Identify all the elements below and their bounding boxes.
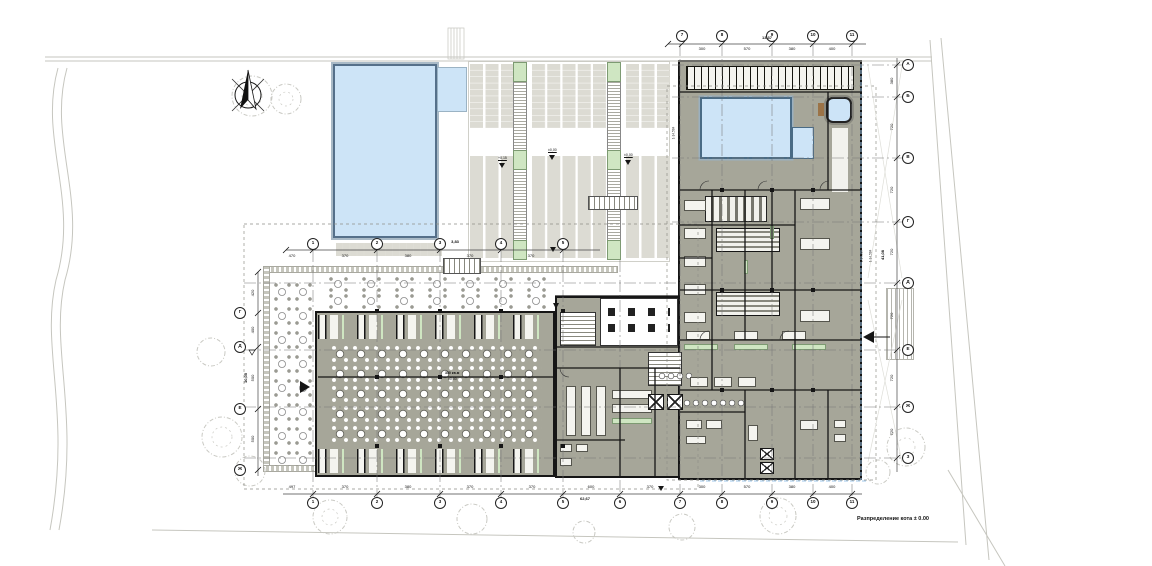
dim-right-0: 380 — [890, 78, 894, 85]
terrace-tables-left — [272, 280, 314, 466]
changing-bench-3 — [738, 377, 756, 387]
grid-bubble-top-1: 1 — [307, 238, 319, 250]
slope-label-1: 1-14.584 — [672, 127, 675, 140]
wc-fixture-6 — [834, 420, 846, 428]
grid-bubble-row-d: Д — [902, 277, 914, 289]
dim-bottom-6: 370 — [647, 485, 654, 489]
terrace-paving-left — [263, 266, 270, 472]
outdoor-pool-shallow — [437, 67, 467, 112]
lockers-row — [683, 399, 745, 408]
pergola-1-planter-mid — [513, 150, 527, 170]
indoor-pool — [700, 97, 792, 159]
treatment-bed-1 — [800, 198, 830, 210]
grid-bubble-4: 4 — [495, 497, 507, 509]
changing-bench-1 — [690, 377, 708, 387]
massage-bed-2 — [684, 228, 706, 239]
terrace-tables-top — [322, 276, 552, 309]
grid-bubble-5: 5 — [557, 497, 569, 509]
wc-fixture-4 — [748, 425, 758, 441]
grid-bubble-11: 11 — [846, 497, 858, 509]
massage-bed-4 — [684, 284, 706, 295]
grid-bubble-8: 8 — [716, 497, 728, 509]
grid-bubble-row-z: З — [902, 452, 914, 464]
grid-bubble-left-zh: Ж — [234, 464, 246, 476]
grid-bubble-left-e: Е — [234, 403, 246, 415]
pergola-1-planter-bot — [513, 240, 527, 260]
shaft-2 — [760, 462, 774, 474]
gym-mat-1 — [684, 344, 718, 350]
grid-bubble-tr-7: 7 — [676, 30, 688, 42]
grid-bubble-row-zh: Ж — [902, 401, 914, 413]
grid-bubble-top-3: 3 — [434, 238, 446, 250]
dim-bottom-0: 497 — [289, 485, 296, 489]
dim-left-1: 400 — [251, 327, 255, 334]
dim-bottom-total: 62,67 — [580, 497, 590, 501]
grid-bubble-7: 7 — [674, 497, 686, 509]
dim-bottom-8: 570 — [744, 485, 751, 489]
relax-benches — [705, 196, 767, 222]
massage-bed-3 — [684, 256, 706, 267]
grid-bubble-top-4: 4 — [495, 238, 507, 250]
floor-plan-canvas: 1 2 3 4 5 6 7 8 9 10 11 1 2 3 4 5 7 8 9 … — [0, 0, 1152, 566]
slope-label-3: 1-14.584 — [869, 250, 872, 263]
gym-bench-3 — [782, 331, 806, 340]
hall-area-label: 350 кв.м — [445, 372, 459, 376]
dim-tr-0: 300 — [699, 47, 706, 51]
wc-fixture-2 — [706, 420, 722, 429]
dim-tr-3: 400 — [829, 47, 836, 51]
pergola-2-planter-bot — [607, 240, 621, 260]
dim-right-4: 720 — [890, 313, 894, 320]
dim-bottom-1: 370 — [342, 485, 349, 489]
dim-bottom-4: 370 — [529, 485, 536, 489]
dim-bottom-2: 380 — [405, 485, 412, 489]
deck-level-note-3: ±0,00 — [624, 154, 633, 158]
dim-tr-2: 380 — [789, 47, 796, 51]
wc-fixture-1 — [686, 420, 702, 429]
dim-bottom-3: 370 — [467, 485, 474, 489]
dim-tr-total: 13,37 — [762, 36, 772, 40]
kitchen-counter-2 — [581, 386, 591, 436]
slope-label-2: 1-14.584 — [860, 250, 863, 263]
shaft-1 — [760, 448, 774, 460]
lobby-sofas-2 — [608, 324, 670, 332]
pergola-1-planter-top — [513, 62, 527, 82]
lobby-sofas-1 — [608, 308, 670, 316]
indoor-loungers-row — [686, 66, 854, 90]
grid-bubble-top-2: 2 — [371, 238, 383, 250]
datum-triangle — [249, 350, 255, 355]
dim-right-1: 720 — [890, 124, 894, 131]
gym-mat-2 — [734, 344, 768, 350]
dim-top-0: 470 — [289, 254, 296, 258]
dim-left-0: 420 — [251, 290, 255, 297]
dim-bottom-10: 400 — [829, 485, 836, 489]
kitchen-green-counter — [612, 418, 652, 424]
grid-bubble-row-v: В — [902, 152, 914, 164]
pool-loungers-row — [336, 243, 442, 261]
grid-bubble-10: 10 — [807, 497, 819, 509]
kitchen-bench-1 — [612, 390, 652, 399]
wc-fixture-5 — [800, 420, 818, 430]
elevator-2 — [667, 394, 683, 410]
hall-level-label: ±0,00 — [448, 378, 457, 382]
grid-bubble-tr-11: 11 — [846, 30, 858, 42]
outdoor-pool — [333, 64, 437, 238]
dim-right-6: 720 — [890, 429, 894, 436]
dim-right-3: 720 — [890, 249, 894, 256]
dim-right-2: 720 — [890, 187, 894, 194]
grid-bubble-1: 1 — [307, 497, 319, 509]
dim-top-1: 370 — [342, 254, 349, 258]
dim-tr-1: 570 — [744, 47, 751, 51]
grid-bubble-3: 3 — [434, 497, 446, 509]
gym-bench-1 — [686, 331, 710, 340]
dim-left-2: 500 — [251, 375, 255, 382]
terrace-paving-bottom — [263, 465, 323, 472]
pergola-2-planter-mid — [607, 150, 621, 170]
dim-top-4: 370 — [528, 254, 535, 258]
terrace-stairs — [443, 258, 481, 274]
elevator-1 — [648, 394, 664, 410]
service-lockers — [658, 372, 692, 381]
deck-loungers-c1 — [626, 64, 670, 128]
dim-bottom-7: 300 — [699, 485, 706, 489]
deck-level-note-2: ±0,00 — [548, 149, 557, 153]
deck-loungers-b1 — [532, 64, 606, 128]
terrace-paving-top — [263, 266, 618, 273]
jacuzzi — [826, 97, 852, 123]
door-strip-2 — [770, 225, 774, 239]
fixture-2 — [576, 444, 588, 452]
grid-bubble-2: 2 — [371, 497, 383, 509]
grid-bubble-tr-8: 8 — [716, 30, 728, 42]
deck-stairs — [588, 196, 638, 210]
kitchen-counter-1 — [566, 386, 576, 436]
towel-shelves — [832, 128, 854, 192]
sauna-2 — [716, 292, 780, 316]
drawing-title: Разпределение кота ± 0.00 — [857, 516, 929, 522]
grid-bubble-row-b: Б — [902, 91, 914, 103]
deck-level-note-1: +0,15 — [498, 157, 507, 161]
grid-bubble-left-g: Г — [234, 307, 246, 319]
massage-bed-5 — [684, 312, 706, 323]
dim-bottom-9: 380 — [789, 485, 796, 489]
fixture-1 — [560, 444, 572, 452]
wc-fixture-7 — [834, 434, 846, 442]
dim-bottom-5: 600 — [588, 485, 595, 489]
deck-loungers-a2 — [470, 156, 514, 258]
grid-bubble-top-5: 5 — [557, 238, 569, 250]
dim-top-note: 3,83 — [451, 240, 459, 244]
north-arrow-icon — [232, 70, 264, 111]
jacuzzi-bench — [818, 103, 824, 116]
restaurant-booths-top — [318, 315, 552, 339]
gym-bench-2 — [734, 331, 758, 340]
kitchen-counter-3 — [596, 386, 606, 436]
grid-bubble-row-a: А — [902, 59, 914, 71]
grid-bubble-tr-10: 10 — [807, 30, 819, 42]
restaurant-booths-bottom — [318, 449, 552, 473]
grid-bubble-left-d: Д — [234, 341, 246, 353]
dim-top-3: 370 — [467, 254, 474, 258]
wc-fixture-3 — [686, 436, 706, 444]
restaurant-tables — [330, 344, 542, 446]
dim-right-5: 720 — [890, 375, 894, 382]
deck-loungers-a1 — [470, 64, 514, 128]
treatment-bed-2 — [800, 238, 830, 250]
stair-core-1 — [560, 312, 596, 346]
door-strip-1 — [744, 260, 748, 274]
grid-bubble-9: 9 — [766, 497, 778, 509]
grid-bubble-6: 6 — [614, 497, 626, 509]
gym-mat-3 — [792, 344, 826, 350]
grid-bubble-row-e: Е — [902, 344, 914, 356]
lobby — [600, 298, 678, 346]
dim-left-3: 500 — [251, 436, 255, 443]
dim-right-total: 41,08 — [881, 250, 885, 260]
pergola-2-planter-top — [607, 62, 621, 82]
dim-left-total: 10,05 — [244, 373, 248, 383]
fold-lines — [868, 66, 902, 462]
indoor-pool-kids — [792, 127, 814, 159]
massage-bed-1 — [684, 200, 706, 211]
fixture-3 — [560, 458, 572, 466]
dim-top-2: 380 — [405, 254, 412, 258]
changing-bench-2 — [714, 377, 732, 387]
kitchen-bench-2 — [612, 404, 652, 413]
grid-bubble-row-g: Г — [902, 216, 914, 228]
treatment-bed-3 — [800, 310, 830, 322]
